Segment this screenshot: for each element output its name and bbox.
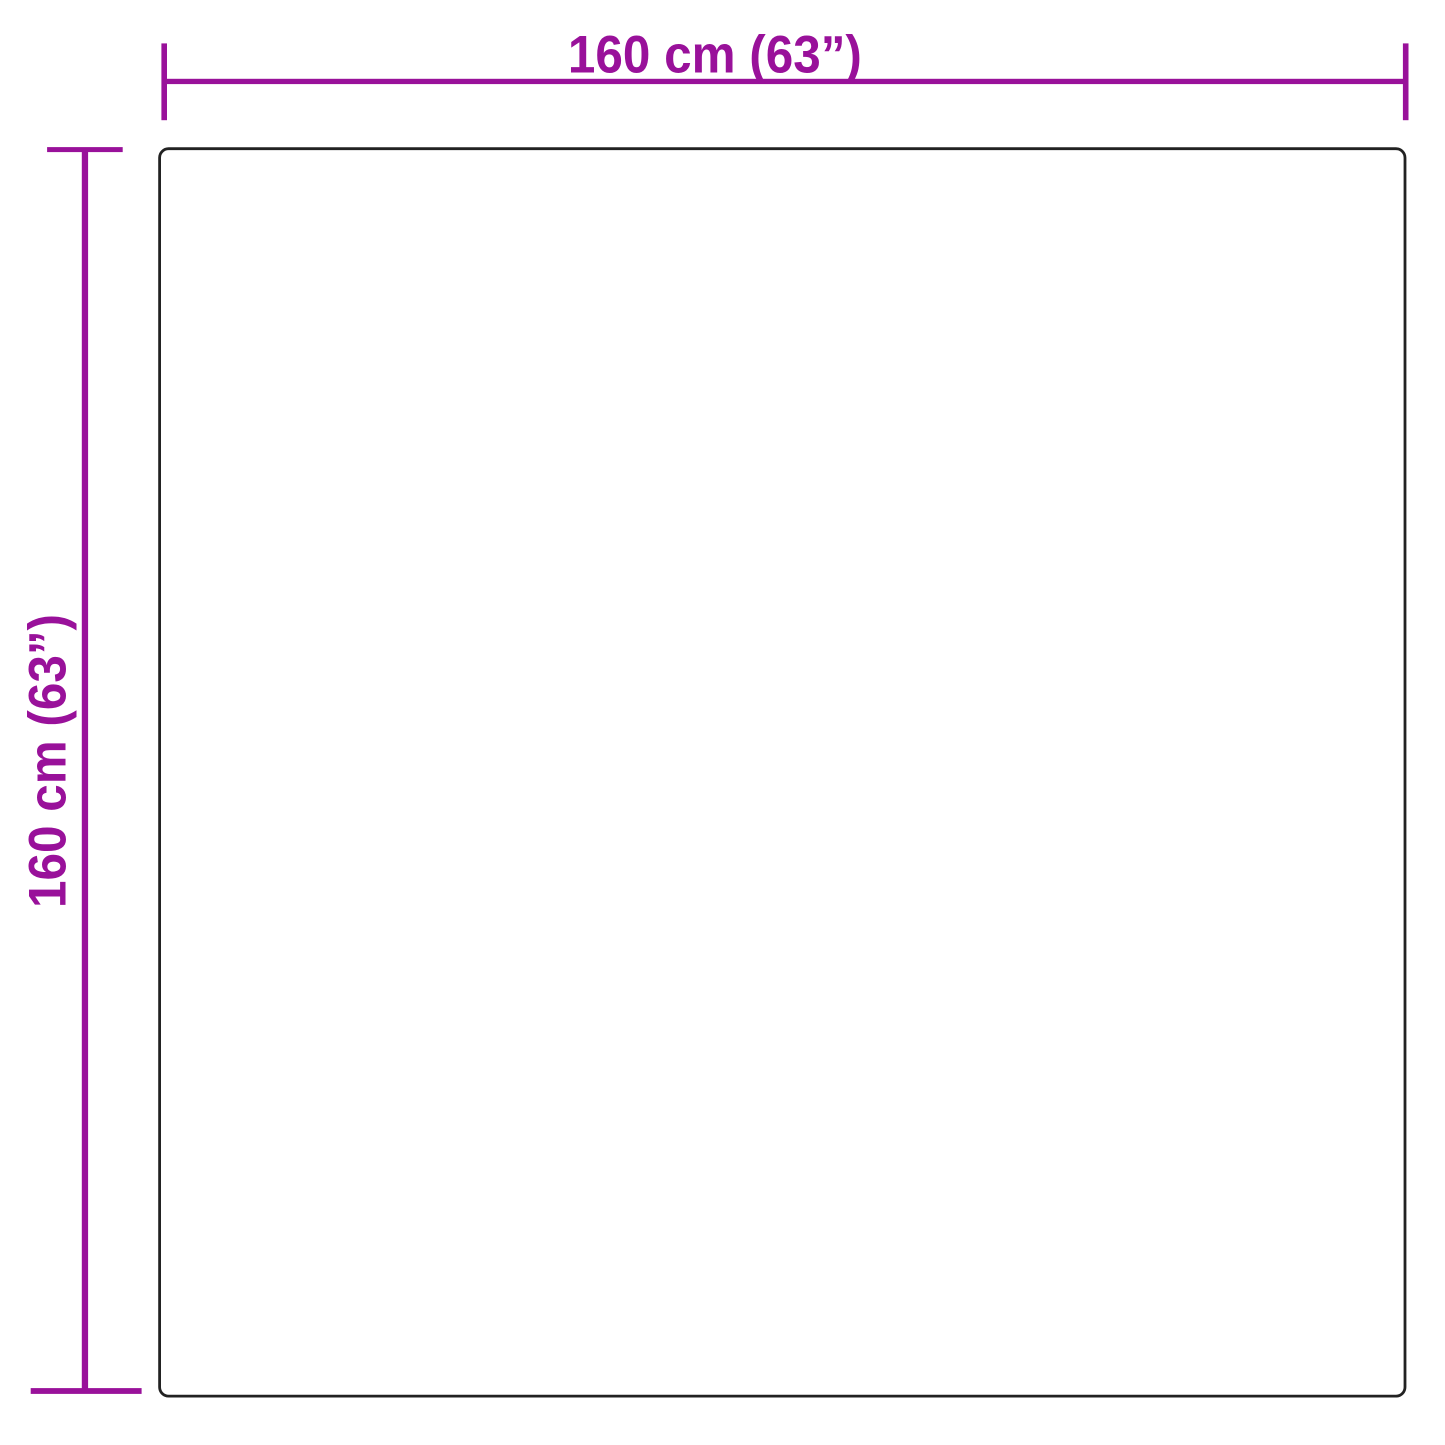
svg-text:160 cm (63”): 160 cm (63”): [18, 614, 77, 908]
svg-text:160 cm (63”): 160 cm (63”): [568, 25, 862, 84]
